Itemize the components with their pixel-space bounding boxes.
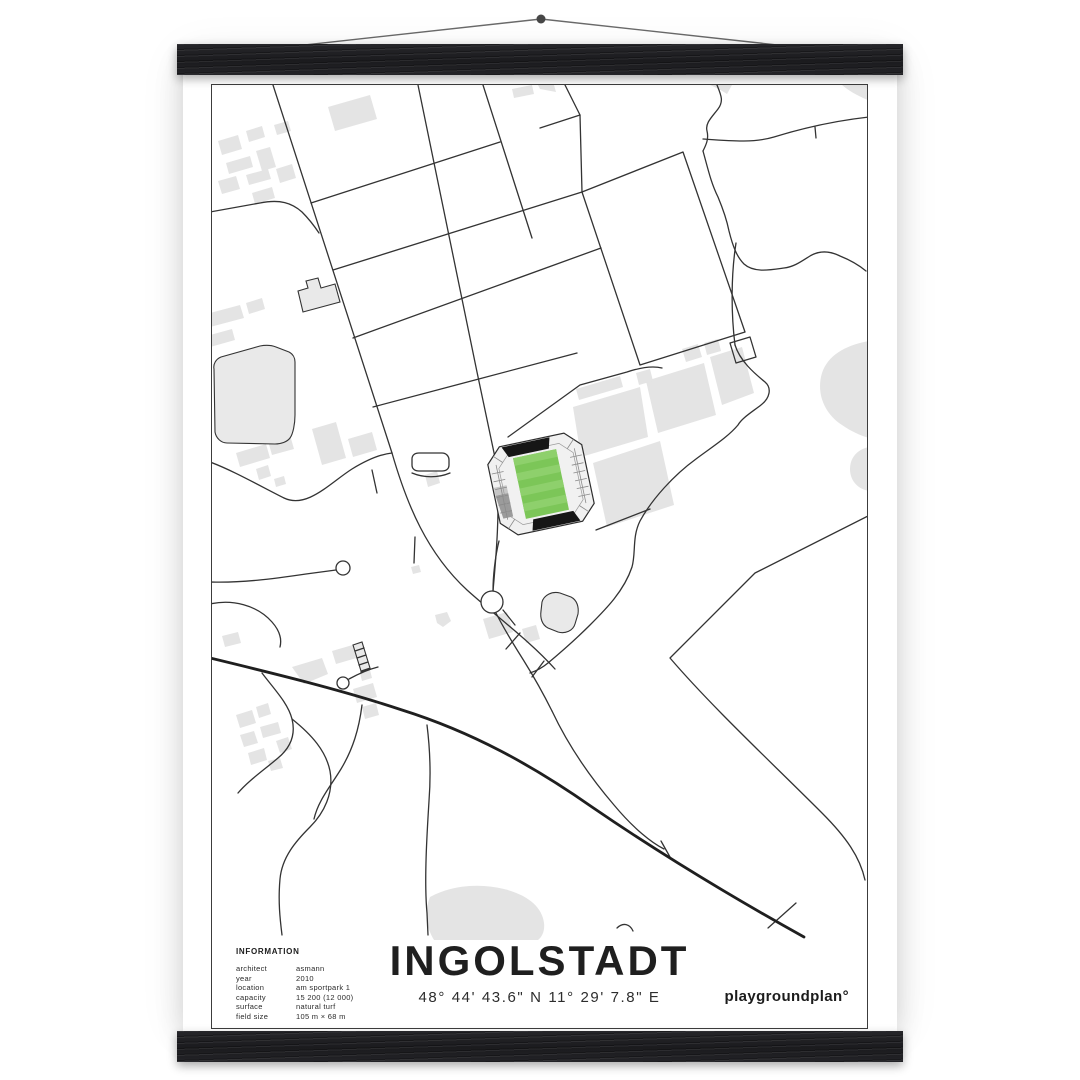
- brand-logo: playgroundplan°: [725, 988, 850, 1005]
- poster: INFORMATION architectasmannyear2010locat…: [183, 55, 897, 1032]
- stadium: [485, 430, 598, 538]
- hanger-bottom-bar: [177, 1031, 903, 1062]
- hanger-nail-icon: [537, 15, 546, 24]
- poster-title: INGOLSTADT: [212, 938, 867, 984]
- poster-scene: INFORMATION architectasmannyear2010locat…: [0, 0, 1080, 1080]
- hanger-top-bar: [177, 44, 903, 75]
- stadium-map-svg: [212, 85, 867, 940]
- info-row: field size105 m × 68 m: [236, 1012, 406, 1022]
- poster-border: INFORMATION architectasmannyear2010locat…: [211, 84, 868, 1029]
